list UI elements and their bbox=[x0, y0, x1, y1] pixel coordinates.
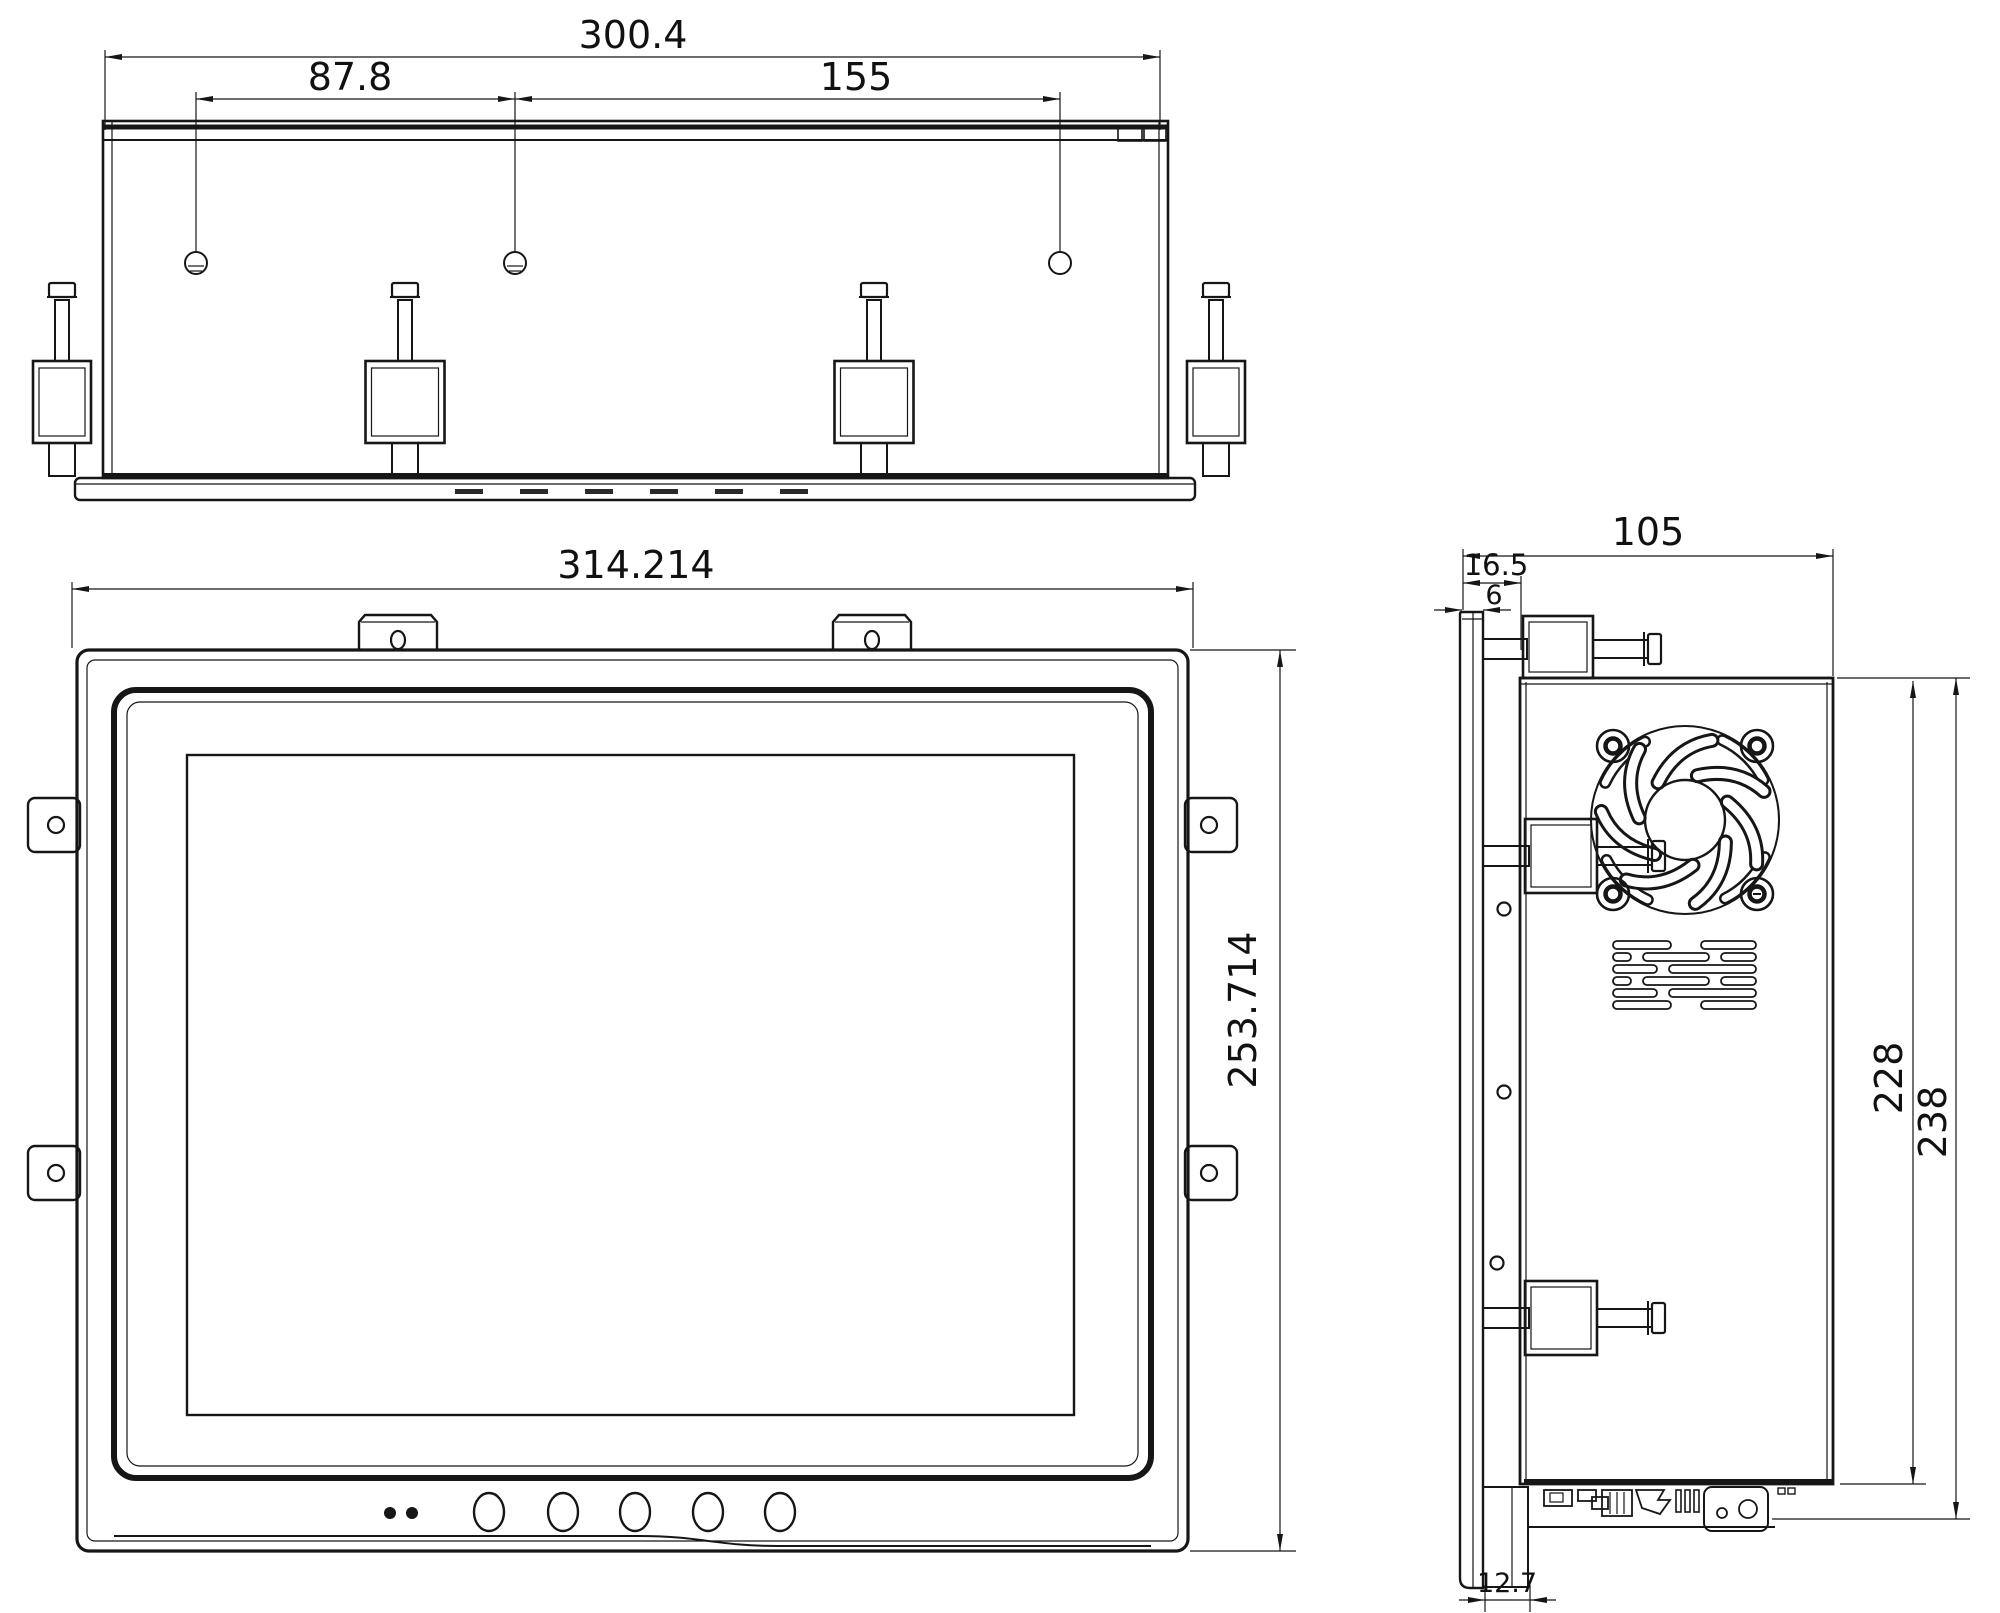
dim-label-top-span-right: 155 bbox=[820, 55, 893, 99]
wall-hole bbox=[1498, 1086, 1511, 1099]
panel-clamp bbox=[1187, 283, 1245, 476]
side-bezel bbox=[1460, 612, 1528, 1588]
panel-clamp bbox=[835, 283, 914, 476]
mounting-tab-side bbox=[28, 798, 80, 852]
fan-screw bbox=[1741, 878, 1773, 910]
dimension-labels: 300.4 87.8 155 314.214 253.714 105 16.5 … bbox=[308, 13, 1955, 1599]
dim-label-top-overall: 300.4 bbox=[579, 13, 688, 57]
dim-label-side-foot-offset: 12.7 bbox=[1477, 1568, 1537, 1599]
power-led bbox=[384, 1507, 396, 1519]
dim-label-side-chassis-height: 228 bbox=[1867, 1042, 1911, 1115]
side-chassis bbox=[1520, 678, 1833, 1484]
wall-hole bbox=[1498, 903, 1511, 916]
mounting-tab-side bbox=[1185, 798, 1237, 852]
control-button bbox=[548, 1493, 578, 1531]
bottom-flange bbox=[75, 478, 1195, 500]
control-button bbox=[765, 1493, 795, 1531]
panel-clamp bbox=[1483, 616, 1661, 678]
top-view-body bbox=[103, 121, 1168, 478]
status-led bbox=[406, 1507, 418, 1519]
mounting-tab-side bbox=[28, 1146, 80, 1200]
top-view bbox=[33, 121, 1245, 500]
dimension-drawing: 300.4 87.8 155 314.214 253.714 105 16.5 … bbox=[0, 0, 2000, 1613]
vent-slots bbox=[1613, 941, 1756, 1009]
dim-label-front-width: 314.214 bbox=[557, 543, 714, 587]
panel-clamp bbox=[33, 283, 91, 476]
wall-hole bbox=[1491, 1257, 1504, 1270]
dim-label-front-height: 253.714 bbox=[1221, 931, 1265, 1088]
panel-clamp bbox=[1483, 1281, 1665, 1355]
screw-hole bbox=[1049, 252, 1071, 274]
drawing-sheet: 300.4 87.8 155 314.214 253.714 105 16.5 … bbox=[0, 0, 2000, 1613]
mounting-clamps bbox=[1483, 616, 1665, 1355]
flange-vent-dashes bbox=[455, 489, 808, 494]
io-connectors bbox=[1528, 1487, 1795, 1531]
dim-label-top-span-left: 87.8 bbox=[308, 55, 393, 99]
fan-icon bbox=[1591, 726, 1779, 914]
control-button bbox=[693, 1493, 723, 1531]
front-frame-inner-line bbox=[87, 660, 1178, 1541]
mounting-tab-top bbox=[359, 615, 437, 651]
control-button bbox=[474, 1493, 504, 1531]
front-bezel bbox=[114, 690, 1151, 1478]
fan-screw bbox=[1597, 730, 1629, 762]
mounting-clamps bbox=[33, 283, 1245, 476]
dim-label-side-depth: 105 bbox=[1612, 510, 1685, 554]
dim-label-side-front-clearance: 16.5 bbox=[1464, 548, 1529, 582]
fan-screw bbox=[1741, 730, 1773, 762]
dimension-lines bbox=[72, 50, 1970, 1612]
dimension-arrows bbox=[72, 54, 1959, 1603]
screen bbox=[187, 755, 1074, 1415]
screw-hole bbox=[504, 252, 526, 274]
mounting-tab-top bbox=[833, 615, 911, 651]
panel-clamp bbox=[366, 283, 445, 476]
mounting-tab-side bbox=[1185, 1146, 1237, 1200]
control-button bbox=[620, 1493, 650, 1531]
side-view bbox=[1460, 612, 1833, 1588]
fan-screw bbox=[1597, 878, 1629, 910]
dim-label-side-overall-height: 238 bbox=[1911, 1086, 1955, 1159]
front-view bbox=[28, 615, 1237, 1551]
dim-label-side-bezel-thickness: 6 bbox=[1485, 580, 1502, 611]
screw-hole bbox=[185, 252, 207, 274]
control-strip bbox=[114, 1493, 1151, 1546]
